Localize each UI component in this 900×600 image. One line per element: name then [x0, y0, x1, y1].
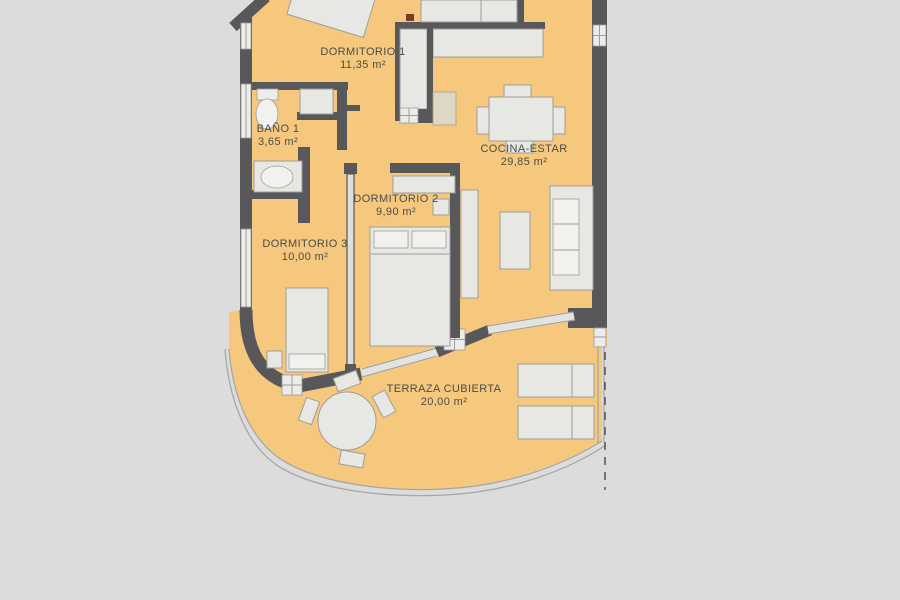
wardrobe-dormitorio-2: [393, 176, 455, 193]
room-area: 29,85 m²: [480, 156, 567, 169]
door-marker: [406, 14, 414, 21]
chair: [504, 85, 531, 97]
kitchen-appliance: [433, 92, 456, 125]
room-name: COCINA-ESTAR: [480, 143, 567, 156]
pillar-curve: [282, 375, 302, 395]
room-area: 10,00 m²: [262, 251, 347, 264]
room-area: 9,90 m²: [353, 206, 438, 219]
room-area: 11,35 m²: [320, 59, 405, 72]
floor-plan-drawing: [0, 0, 900, 600]
chair: [553, 107, 565, 134]
room-area: 20,00 m²: [387, 396, 502, 409]
room-name: TERRAZA CUBIERTA: [387, 383, 502, 396]
room-area: 3,65 m²: [257, 136, 300, 149]
bathroom-sink: [254, 161, 302, 192]
sofa: [550, 186, 593, 290]
nightstand: [267, 351, 282, 368]
room-label-dormitorio-3: DORMITORIO 3 10,00 m²: [262, 238, 347, 264]
chair: [477, 107, 489, 134]
coffee-table: [500, 212, 530, 269]
room-name: DORMITORIO 3: [262, 238, 347, 251]
room-label-cocina-estar: COCINA-ESTAR 29,85 m²: [480, 143, 567, 169]
tv-cabinet: [461, 190, 478, 298]
room-label-dormitorio-2: DORMITORIO 2 9,90 m²: [353, 193, 438, 219]
room-name: DORMITORIO 1: [320, 46, 405, 59]
floor-plan-stage: DORMITORIO 1 11,35 m² BAÑO 1 3,65 m² COC…: [0, 0, 900, 600]
room-name: BAÑO 1: [257, 123, 300, 136]
room-label-bano-1: BAÑO 1 3,65 m²: [257, 123, 300, 149]
room-name: DORMITORIO 2: [353, 193, 438, 206]
kitchen-sink: [400, 108, 418, 123]
room-label-dormitorio-1: DORMITORIO 1 11,35 m²: [320, 46, 405, 72]
shower: [300, 89, 333, 114]
room-label-terraza-cubierta: TERRAZA CUBIERTA 20,00 m²: [387, 383, 502, 409]
